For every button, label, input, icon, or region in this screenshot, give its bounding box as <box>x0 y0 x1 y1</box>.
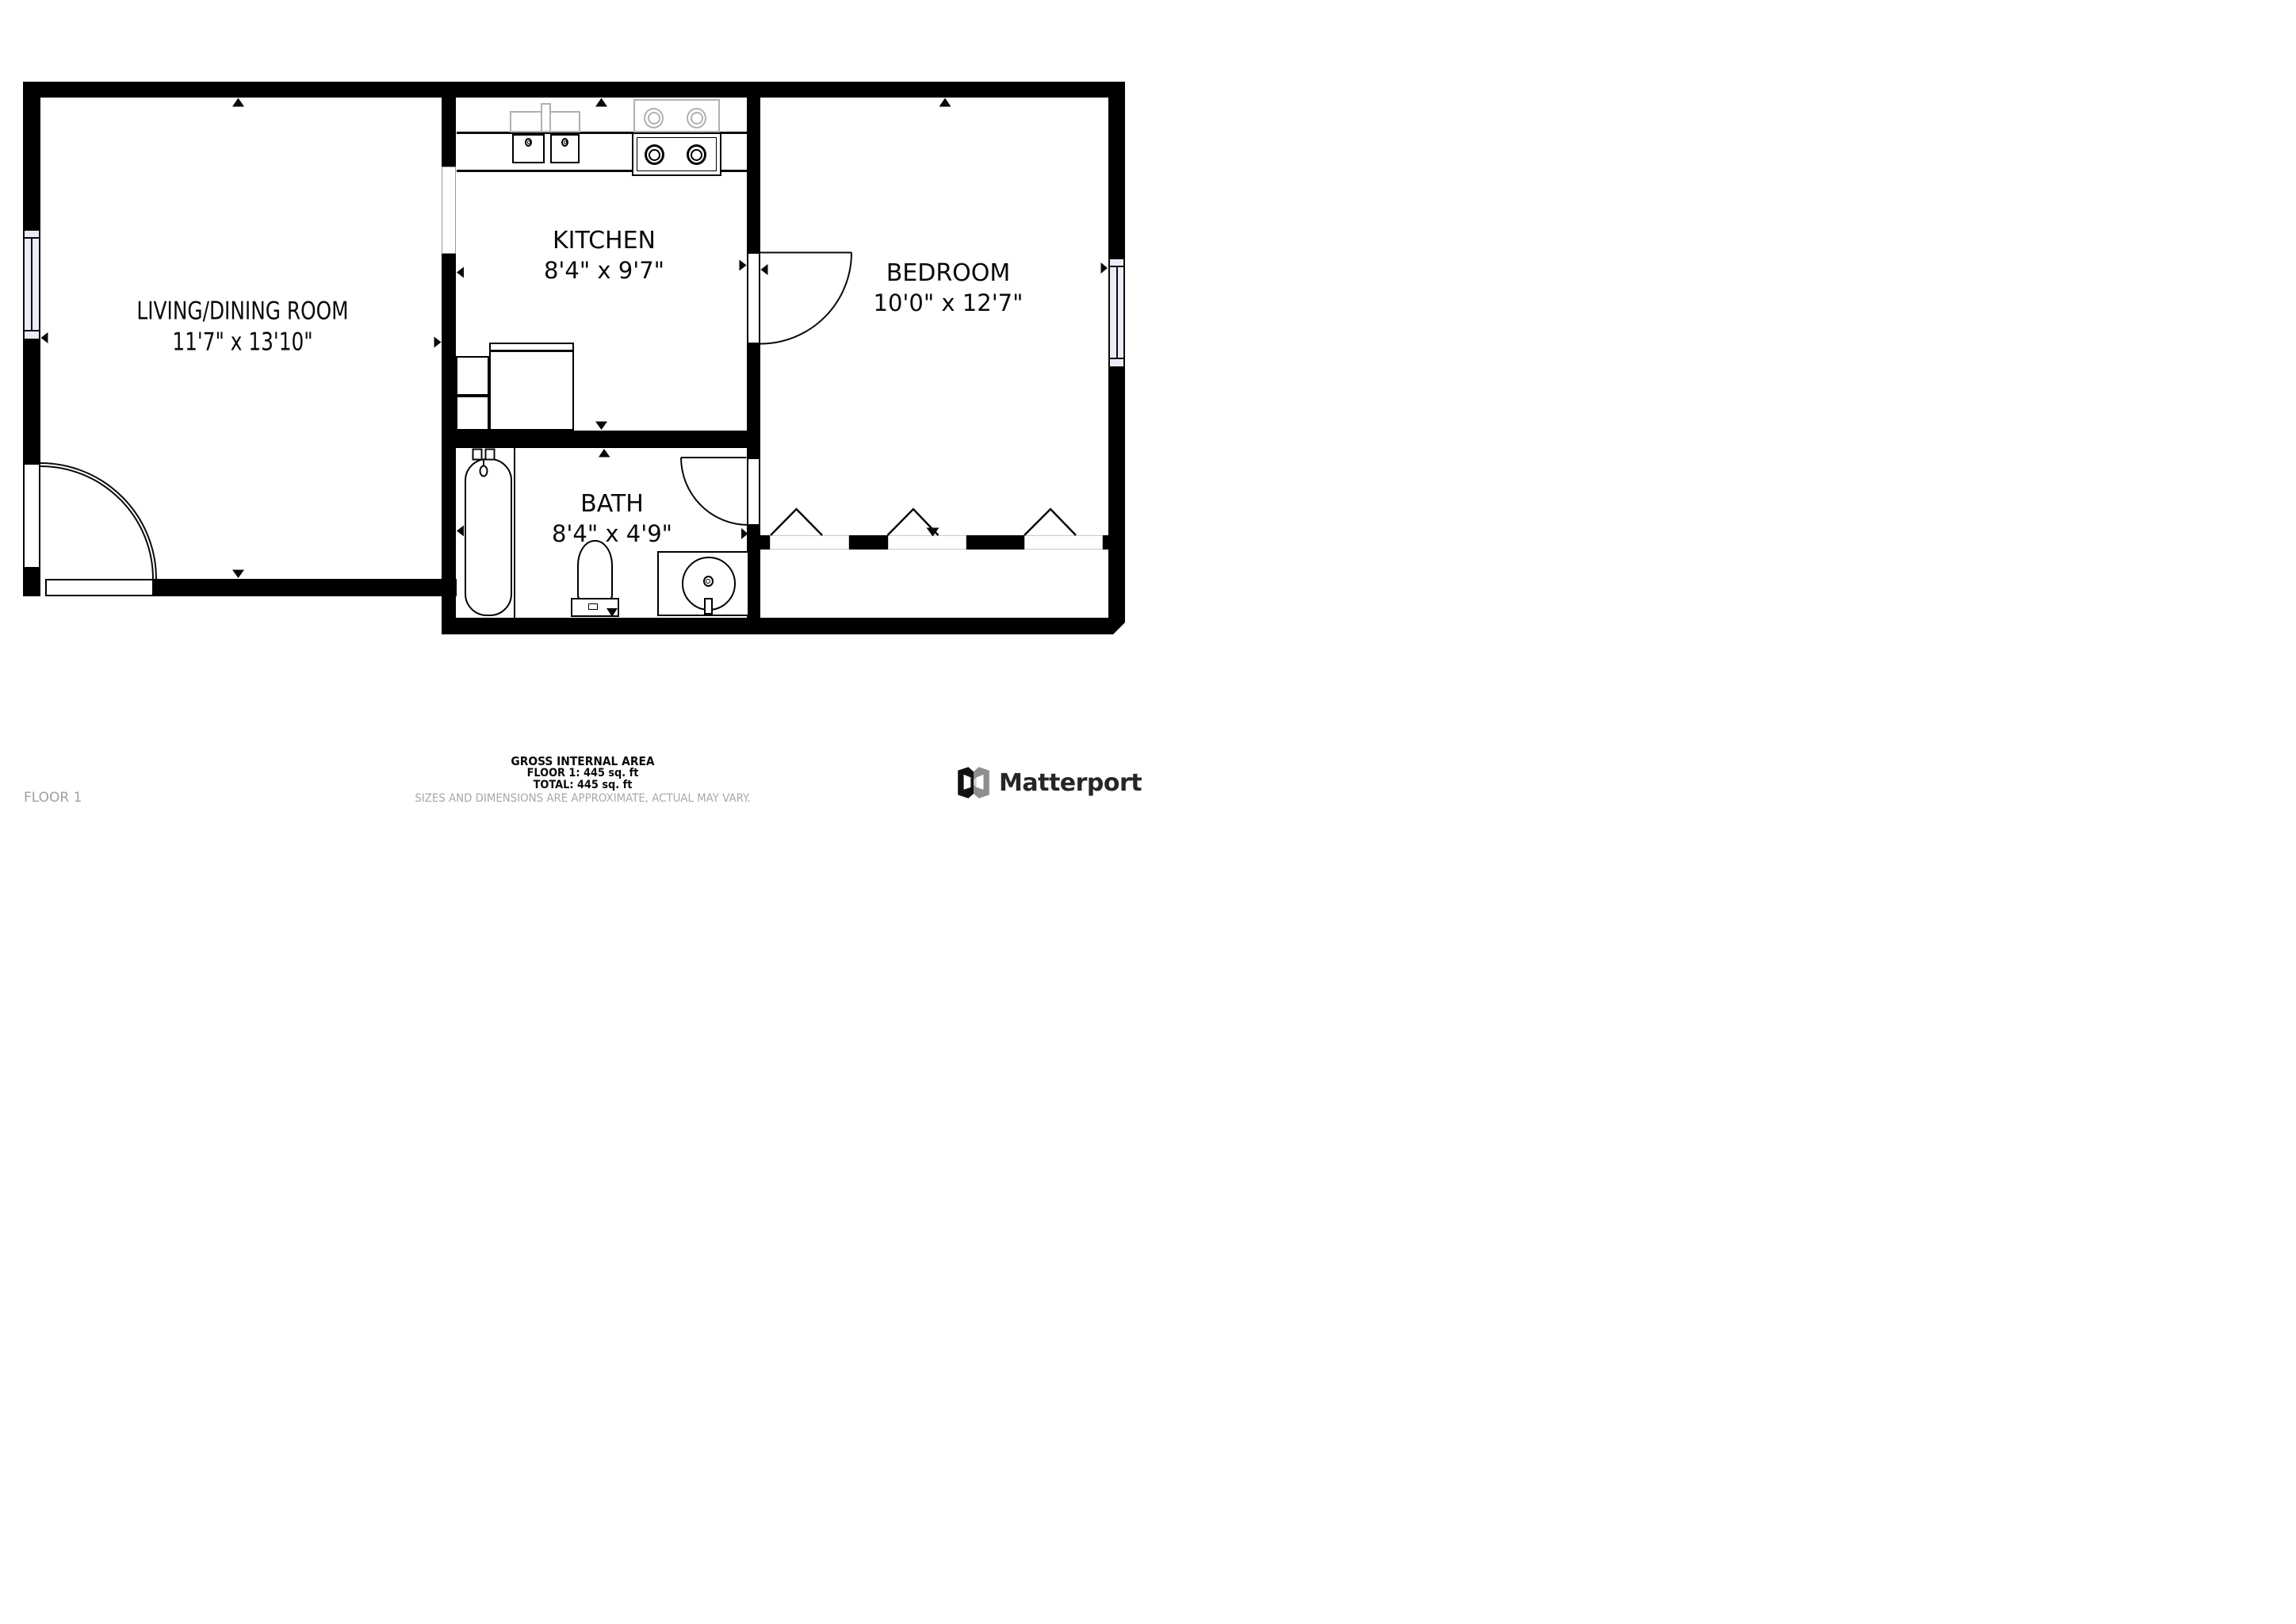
room-label-kitchen: KITCHEN 8'4" x 9'7" <box>544 226 664 285</box>
tub-faucet <box>486 450 495 460</box>
room-dims: 8'4" x 4'9" <box>552 519 672 548</box>
brand-name: Matterport <box>999 769 1142 797</box>
dim-arrow-up <box>232 98 244 107</box>
room-name: BATH <box>552 489 672 519</box>
room-label-bath: BATH 8'4" x 4'9" <box>552 489 672 548</box>
matterport-icon <box>956 766 991 799</box>
dim-arrow-right <box>1101 262 1108 274</box>
room-name: BEDROOM <box>874 259 1024 289</box>
brand-logo: Matterport <box>956 766 1142 799</box>
dim-arrow-right <box>434 337 442 348</box>
dim-arrow-left <box>41 332 48 343</box>
dim-arrow-left <box>761 264 768 275</box>
bifold-door-icon <box>1024 509 1076 535</box>
room-label-bedroom: BEDROOM 10'0" x 12'7" <box>874 259 1024 317</box>
dim-arrow-up <box>595 98 607 107</box>
entry-door-arc <box>40 466 153 579</box>
bath-door-arc <box>681 458 748 525</box>
dim-arrow-down <box>607 608 618 617</box>
dim-arrow-right <box>741 528 748 539</box>
room-dims: 11'7" x 13'10" <box>136 327 348 358</box>
room-dims: 10'0" x 12'7" <box>874 289 1024 317</box>
room-name: KITCHEN <box>544 226 664 256</box>
dim-arrow-down <box>232 570 244 579</box>
corner-bevel <box>1113 622 1125 634</box>
room-dims: 8'4" x 9'7" <box>544 256 664 285</box>
dim-arrow-right <box>740 260 747 271</box>
tub-faucet-drop <box>480 466 488 477</box>
entry-door-arc <box>40 463 156 579</box>
dim-arrow-up <box>939 98 951 107</box>
bifold-door-icon <box>771 509 822 535</box>
dim-arrow-left <box>457 526 464 537</box>
bedroom-door-arc <box>760 253 851 344</box>
room-label-living: LIVING/DINING ROOM 11'7" x 13'10" <box>136 296 348 358</box>
plan-linework <box>0 0 1148 812</box>
floorplan-page: LIVING/DINING ROOM 11'7" x 13'10" KITCHE… <box>0 0 1148 812</box>
tub-faucet <box>473 450 482 460</box>
dim-arrow-up <box>599 449 610 458</box>
dim-arrow-left <box>457 267 464 278</box>
dim-arrow-down <box>595 422 607 431</box>
room-name: LIVING/DINING ROOM <box>136 296 348 327</box>
